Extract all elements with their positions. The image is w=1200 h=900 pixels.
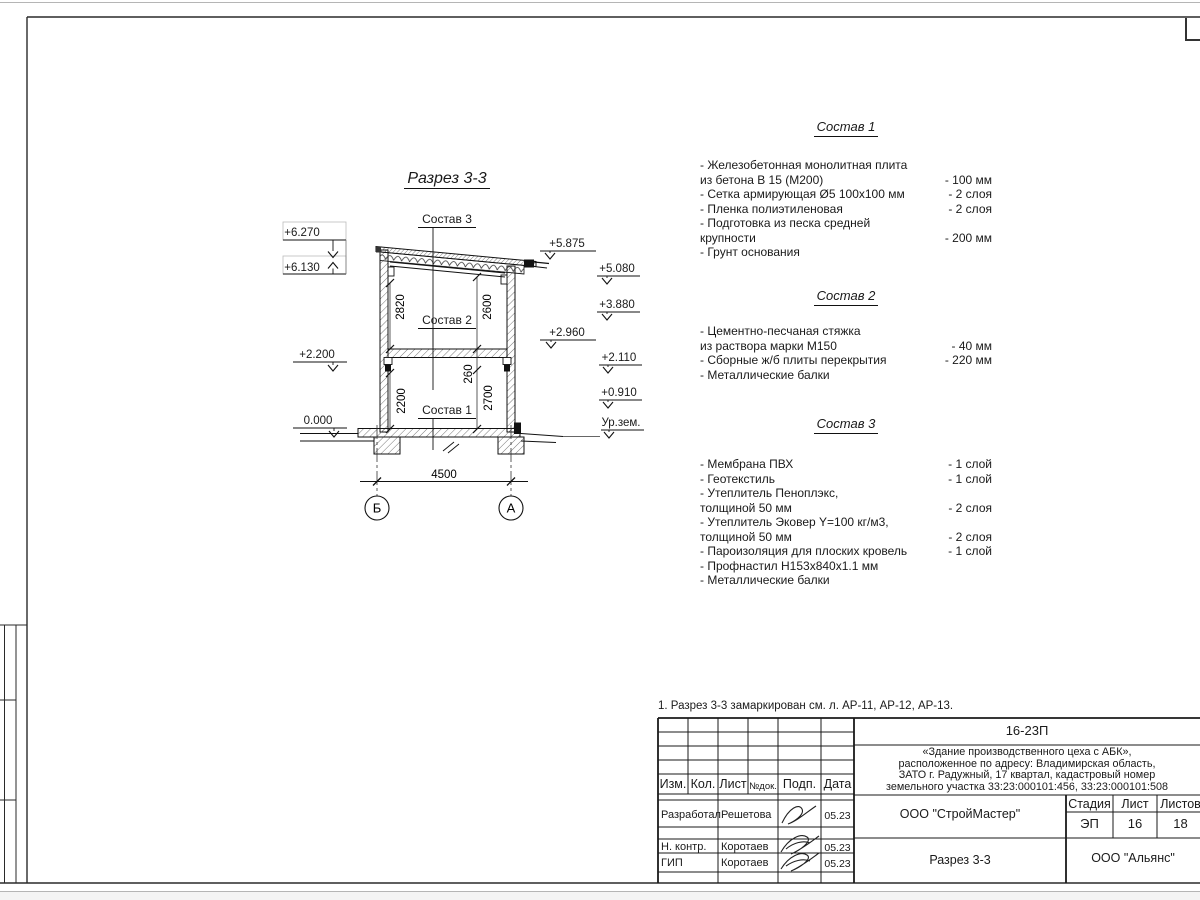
col-list: Лист <box>718 777 748 791</box>
composition-item-value: - 40 мм <box>951 339 992 354</box>
composition-item-text: - Профнастил Н153х840х1.1 мм <box>700 559 984 574</box>
axis-label-a: А <box>507 501 516 516</box>
composition-item-text: - Утеплитель Пеноплэкс, толщиной 50 мм <box>700 486 940 515</box>
sheet-note: 1. Разрез 3-3 замаркирован см. л. АР-11,… <box>658 699 953 713</box>
composition-item-value: - 2 слоя <box>948 187 992 202</box>
col-kol: Кол. <box>688 777 718 791</box>
composition-item-text: - Сборные ж/б плиты перекрытия <box>700 353 937 368</box>
level-5875: +5.875 <box>537 237 597 251</box>
col-podp: Подп. <box>778 777 821 791</box>
composition-item: - Профнастил Н153х840х1.1 мм <box>700 559 992 574</box>
composition-item-text: - Грунт основания <box>700 245 984 260</box>
composition-item: - Цементно-песчаная стяжка из раствора м… <box>700 324 992 353</box>
axis-label-b: Б <box>373 501 382 516</box>
composition-3-title: Состав 3 <box>700 416 992 431</box>
composition-item-text: - Геотекстиль <box>700 472 940 487</box>
dim-4500: 4500 <box>431 469 457 481</box>
signature-developer <box>782 806 816 824</box>
project-description-4: земельного участка 33:23:000101:456, 33:… <box>854 782 1200 794</box>
level-2200: +2.200 <box>287 348 347 362</box>
row-ncontrol-date: 05.23 <box>821 841 854 855</box>
composition-item-value: - 200 мм <box>945 231 992 246</box>
stage-label: Стадия <box>1066 797 1113 811</box>
row-gip-name: Коротаев <box>721 856 769 870</box>
sheets-label: Листов <box>1157 797 1200 811</box>
composition-item-text: - Цементно-песчаная стяжка из раствора м… <box>700 324 943 353</box>
composition-item-value: - 2 слоя <box>948 501 992 516</box>
composition-item: - Пленка полиэтиленовая- 2 слоя <box>700 202 992 217</box>
composition-item: - Металлические балки <box>700 573 992 588</box>
level-2960: +2.960 <box>537 326 597 340</box>
composition-item-value: - 1 слой <box>948 472 992 487</box>
row-developer-name: Решетова <box>721 808 771 822</box>
composition-item: - Железобетонная монолитная плита из бет… <box>700 158 992 187</box>
footing-left <box>374 437 400 454</box>
sheet-number: 16 <box>1113 817 1157 831</box>
composition-2-title: Состав 2 <box>700 288 992 303</box>
contractor-name: ООО "Альянс" <box>1066 851 1200 865</box>
exterior-apron <box>514 423 600 443</box>
organization-name: ООО "СтройМастер" <box>854 807 1066 821</box>
row-developer-date: 05.23 <box>821 809 854 823</box>
row-gip-date: 05.23 <box>821 857 854 871</box>
level-3880: +3.880 <box>587 298 647 312</box>
wall-axis-a <box>507 266 515 432</box>
composition-1-list: - Железобетонная монолитная плита из бет… <box>700 158 992 260</box>
level-0000: 0.000 <box>288 414 348 428</box>
ground-slab <box>300 429 520 454</box>
col-izm: Изм. <box>658 777 688 791</box>
composition-item-value: - 1 слой <box>948 544 992 559</box>
composition-item-value: - 2 слоя <box>948 202 992 217</box>
col-ndok: №док. <box>748 780 778 794</box>
composition-item: - Металлические балки <box>700 368 992 383</box>
level-2110: +2.110 <box>589 351 649 365</box>
composition-2-list: - Цементно-песчаная стяжка из раствора м… <box>700 324 992 382</box>
composition-item: - Сборные ж/б плиты перекрытия- 220 мм <box>700 353 992 368</box>
composition-item-text: - Пароизоляция для плоских кровель <box>700 544 940 559</box>
level-6270: +6.270 <box>272 226 332 240</box>
stage-value: ЭП <box>1066 817 1113 831</box>
composition-item: - Сетка армирующая Ø5 100х100 мм- 2 слоя <box>700 187 992 202</box>
row-ncontrol-role: Н. контр. <box>661 840 706 854</box>
composition-item-value: - 1 слой <box>948 457 992 472</box>
composition-1-title: Состав 1 <box>700 119 992 134</box>
frame-corner-mark <box>1186 18 1200 40</box>
composition-item-text: - Металлические балки <box>700 573 984 588</box>
level-ground: Ур.зем. <box>591 416 651 430</box>
row-gip-role: ГИП <box>661 856 683 870</box>
composition-item-text: - Утеплитель Эковер Y=100 кг/м3, толщино… <box>700 515 940 544</box>
col-data: Дата <box>821 777 854 791</box>
composition-item-text: - Пленка полиэтиленовая <box>700 202 940 217</box>
project-description-3: ЗАТО г. Радужный, 17 квартал, кадастровы… <box>854 770 1200 782</box>
composition-item-value: - 2 слоя <box>948 530 992 545</box>
composition-item: - Мембрана ПВХ- 1 слой <box>700 457 992 472</box>
composition-item: - Утеплитель Пеноплэкс, толщиной 50 мм- … <box>700 486 992 515</box>
drawing-title: Разрез 3-3 <box>377 172 517 186</box>
composition-item: - Геотекстиль- 1 слой <box>700 472 992 487</box>
composition-3-list: - Мембрана ПВХ- 1 слой- Геотекстиль- 1 с… <box>700 457 992 588</box>
composition-item-text: - Подготовка из песка средней крупности <box>700 216 937 245</box>
composition-item-text: - Мембрана ПВХ <box>700 457 940 472</box>
composition-item-text: - Металлические балки <box>700 368 984 383</box>
doc-number: 16-23П <box>854 724 1200 738</box>
left-side-stamp <box>0 625 27 883</box>
composition-item: - Утеплитель Эковер Y=100 кг/м3, толщино… <box>700 515 992 544</box>
sheets-total: 18 <box>1157 817 1200 831</box>
row-ncontrol-name: Коротаев <box>721 840 769 854</box>
composition-item-value: - 100 мм <box>945 173 992 188</box>
composition-item: - Пароизоляция для плоских кровель- 1 сл… <box>700 544 992 559</box>
span-dimension: 4500 <box>360 469 528 486</box>
callout-sostav-2: Состав 2 <box>397 313 497 327</box>
wall-axis-b <box>380 250 388 432</box>
level-5080: +5.080 <box>587 262 647 276</box>
composition-item: - Грунт основания <box>700 245 992 260</box>
composition-item-value: - 220 мм <box>945 353 992 368</box>
composition-item: - Подготовка из песка средней крупности-… <box>700 216 992 245</box>
drawing-sheet: { "drawing": { "title": "Разрез 3-3", "c… <box>0 0 1200 900</box>
signature-ncontrol <box>781 836 819 854</box>
signature-gip <box>781 853 819 871</box>
sheet-title: Разрез 3-3 <box>854 853 1066 867</box>
callout-sostav-3: Состав 3 <box>397 212 497 226</box>
composition-item-text: - Железобетонная монолитная плита из бет… <box>700 158 937 187</box>
callout-sostav-1: Состав 1 <box>397 403 497 417</box>
roof <box>376 247 549 278</box>
composition-item-text: - Сетка армирующая Ø5 100х100 мм <box>700 187 940 202</box>
level-0910: +0.910 <box>589 386 649 400</box>
sheet-label: Лист <box>1113 797 1157 811</box>
floor-slab <box>384 349 511 372</box>
row-developer-role: Разработал <box>661 808 721 822</box>
project-description-1: «Здание производственного цеха с АБК», <box>854 747 1200 759</box>
dim-260: 260 <box>463 364 475 383</box>
level-6130: +6.130 <box>272 261 332 275</box>
